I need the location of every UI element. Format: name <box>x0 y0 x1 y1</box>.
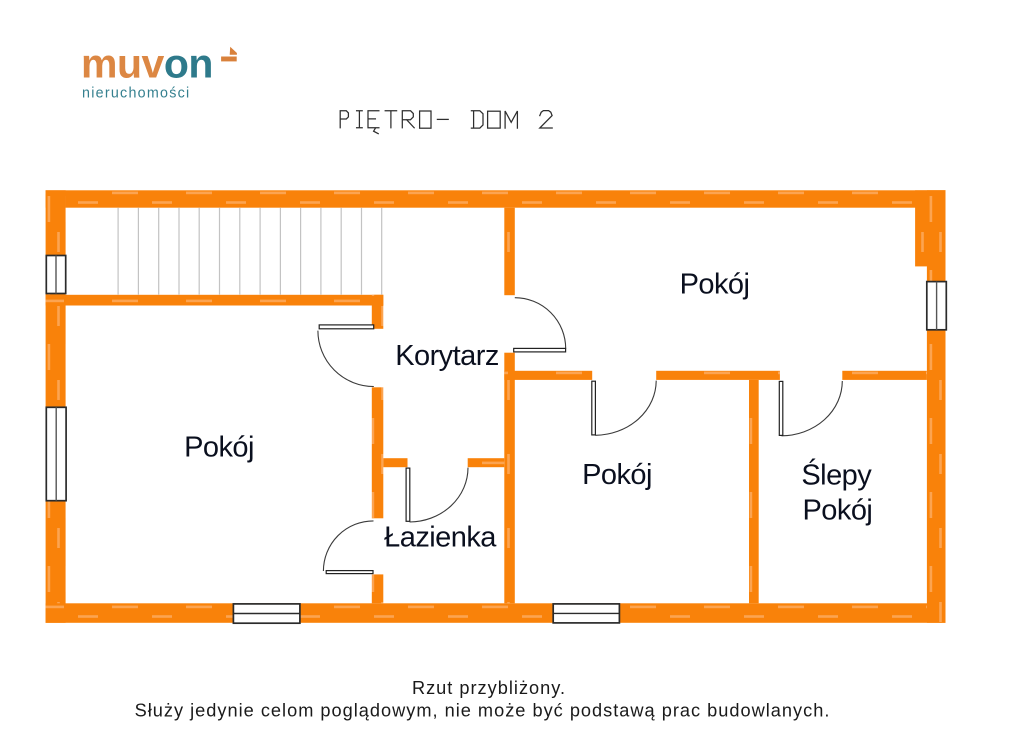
svg-text:Korytarz: Korytarz <box>395 340 499 372</box>
svg-text:Pokój: Pokój <box>680 269 750 301</box>
svg-text:muvon: muvon <box>81 41 213 87</box>
svg-text:Rzut przybliżony.: Rzut przybliżony. <box>412 678 566 698</box>
svg-text:Łazienka: Łazienka <box>384 521 497 553</box>
svg-text:Służy jedynie celom poglądowym: Służy jedynie celom poglądowym, nie może… <box>135 701 831 721</box>
svg-text:Pokój: Pokój <box>803 494 873 526</box>
svg-text:Pokój: Pokój <box>184 432 254 464</box>
svg-text:nieruchomości: nieruchomości <box>82 86 190 102</box>
svg-text:Pokój: Pokój <box>582 459 652 491</box>
svg-text:Ślepy: Ślepy <box>801 458 872 492</box>
